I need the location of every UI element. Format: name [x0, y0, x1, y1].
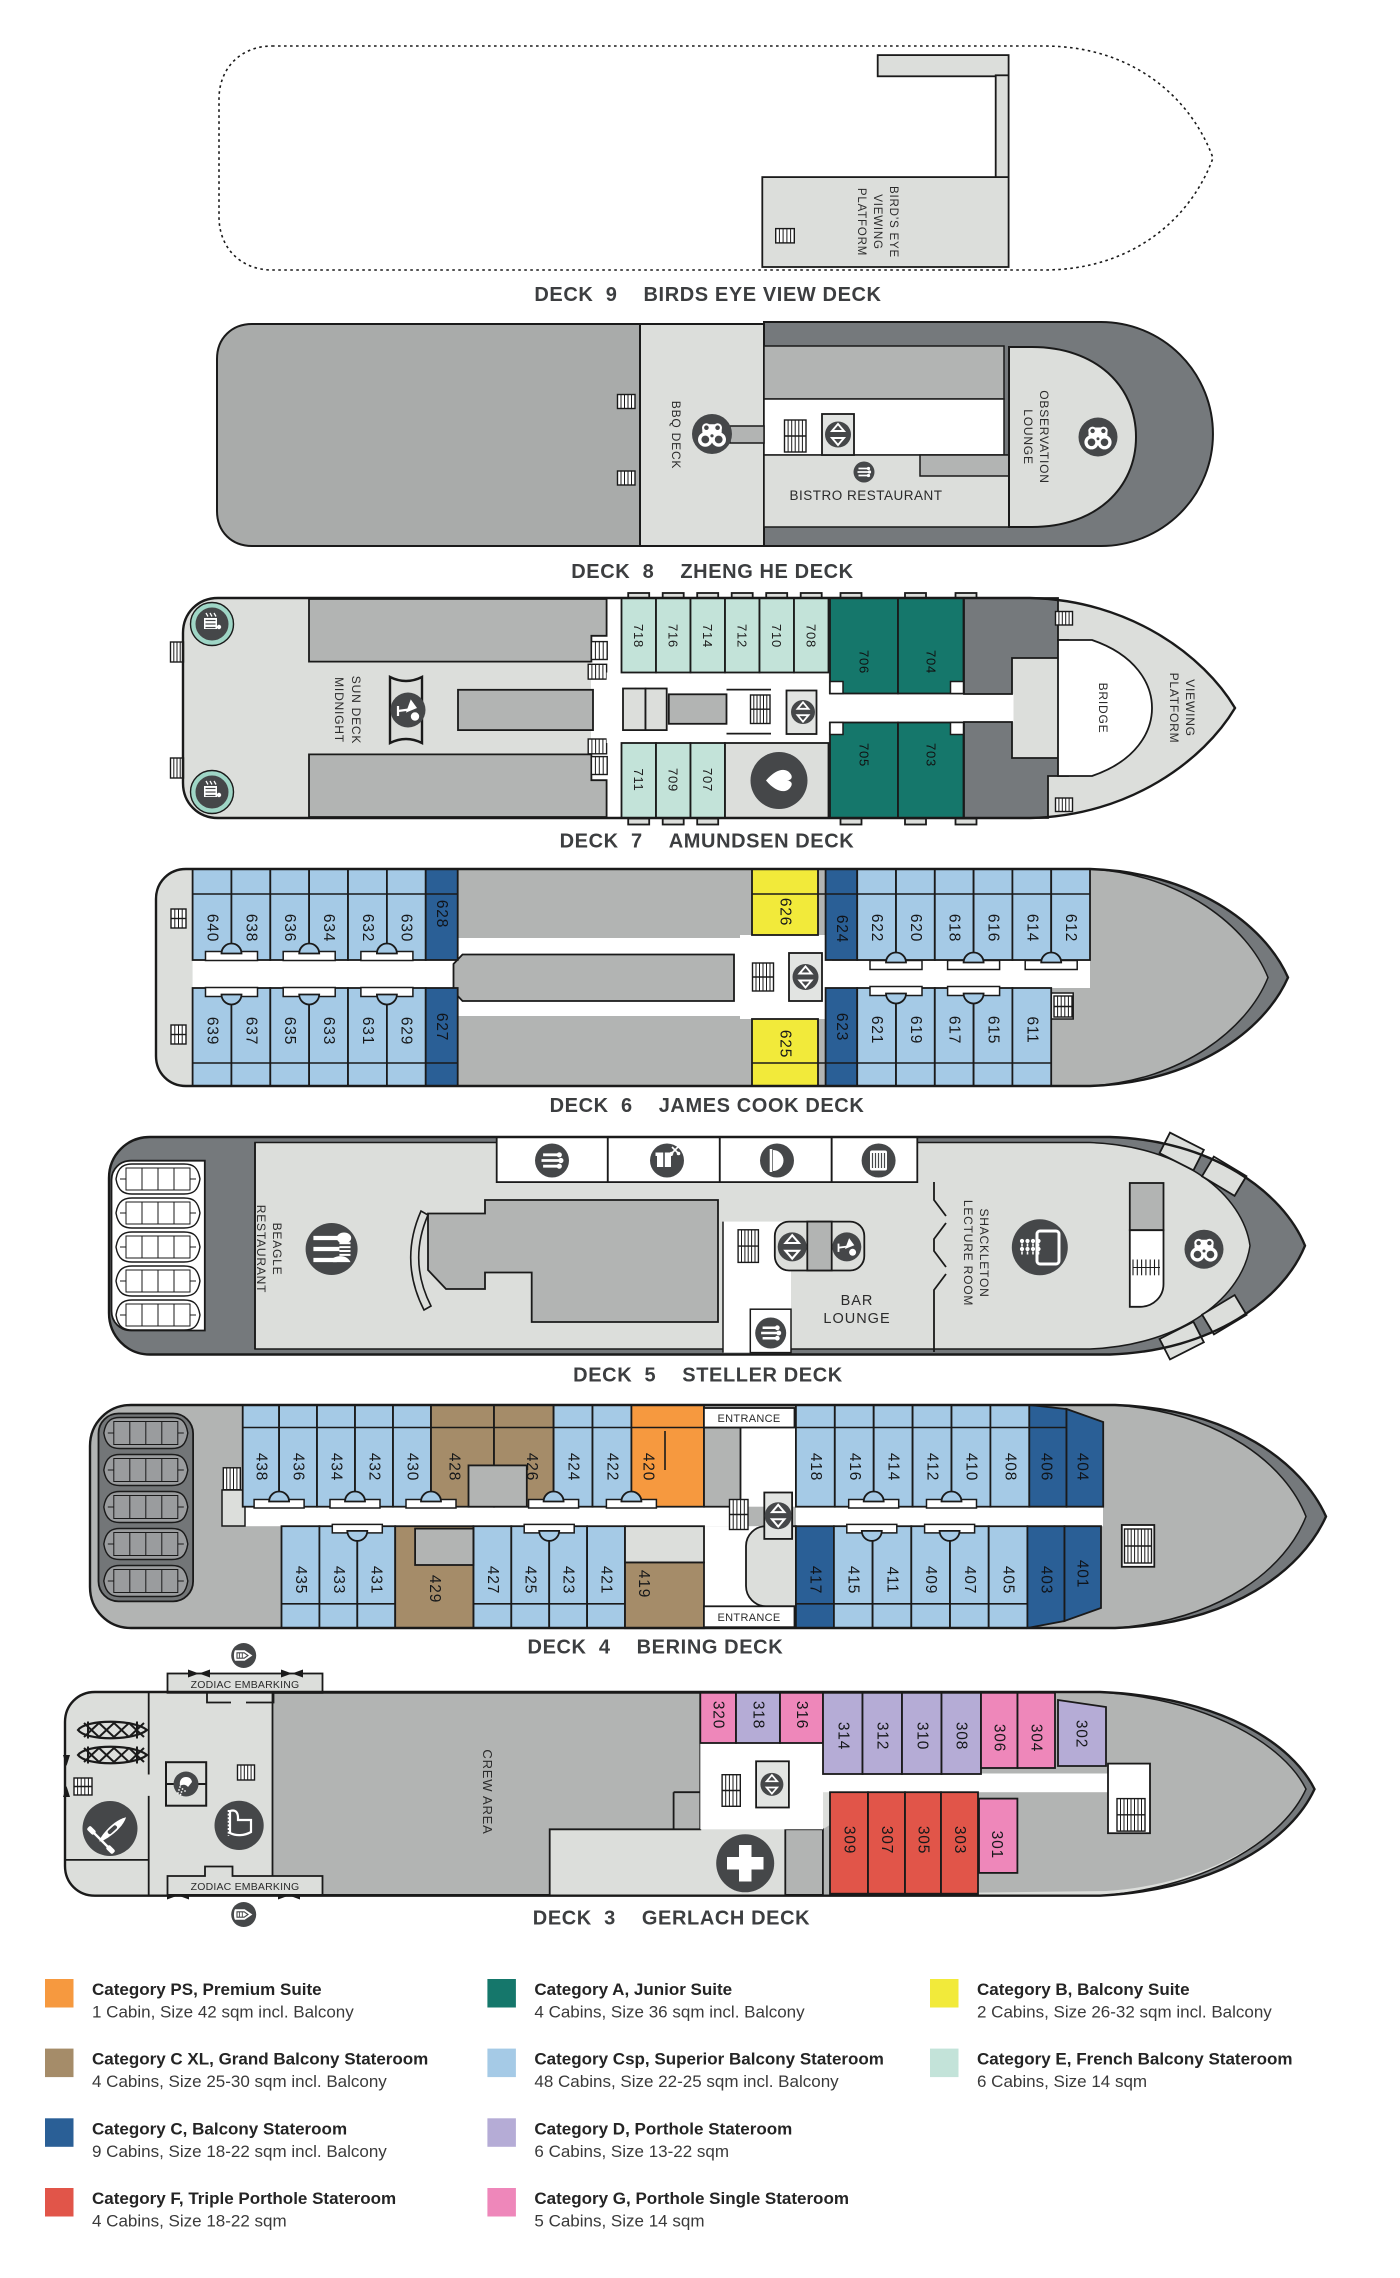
- svg-text:628: 628: [433, 900, 450, 928]
- svg-text:416: 416: [846, 1453, 863, 1481]
- svg-text:2 Cabins, Size 26-32 sqm incl.: 2 Cabins, Size 26-32 sqm incl. Balcony: [977, 2003, 1272, 2022]
- svg-text:630: 630: [398, 914, 415, 942]
- svg-text:615: 615: [985, 1016, 1002, 1044]
- svg-text:616: 616: [985, 914, 1002, 942]
- svg-text:429: 429: [426, 1575, 443, 1603]
- svg-text:309: 309: [841, 1826, 858, 1854]
- svg-text:414: 414: [885, 1453, 902, 1481]
- svg-text:710: 710: [769, 624, 784, 648]
- svg-text:422: 422: [604, 1453, 621, 1481]
- svg-text:Category C, Balcony Stateroom: Category C, Balcony Stateroom: [92, 2119, 347, 2138]
- svg-text:5 Cabins, Size 14 sqm: 5 Cabins, Size 14 sqm: [534, 2212, 704, 2231]
- svg-text:DECK 9BIRDS EYE VIEW DECK: DECK 9BIRDS EYE VIEW DECK: [534, 284, 881, 306]
- svg-text:BIRD’S EYE: BIRD’S EYE: [887, 186, 899, 258]
- svg-text:401: 401: [1074, 1560, 1091, 1588]
- svg-text:LECTURE ROOM: LECTURE ROOM: [961, 1200, 975, 1306]
- svg-text:PLATFORM: PLATFORM: [855, 188, 867, 256]
- svg-text:705: 705: [857, 743, 872, 767]
- svg-text:4 Cabins, Size 25-30 sqm incl.: 4 Cabins, Size 25-30 sqm incl. Balcony: [92, 2072, 387, 2091]
- svg-text:425: 425: [522, 1566, 539, 1594]
- svg-text:625: 625: [777, 1030, 794, 1058]
- svg-text:DECK 8ZHENG HE DECK: DECK 8ZHENG HE DECK: [571, 561, 853, 583]
- svg-text:410: 410: [963, 1453, 980, 1481]
- svg-text:BISTRO RESTAURANT: BISTRO RESTAURANT: [789, 488, 942, 503]
- svg-text:712: 712: [735, 624, 750, 648]
- svg-text:VIEWING: VIEWING: [1183, 679, 1197, 737]
- svg-text:Category A, Junior Suite: Category A, Junior Suite: [534, 1980, 732, 1999]
- svg-text:635: 635: [281, 1017, 298, 1045]
- svg-text:Category B, Balcony Suite: Category B, Balcony Suite: [977, 1980, 1190, 1999]
- svg-text:Category PS, Premium Suite: Category PS, Premium Suite: [92, 1980, 322, 1999]
- svg-text:DECK 5STELLER DECK: DECK 5STELLER DECK: [573, 1365, 843, 1387]
- svg-text:433: 433: [330, 1566, 347, 1594]
- svg-text:409: 409: [922, 1566, 939, 1594]
- svg-text:428: 428: [446, 1453, 463, 1481]
- svg-text:PLATFORM: PLATFORM: [1167, 673, 1181, 744]
- svg-text:626: 626: [777, 898, 794, 926]
- svg-text:310: 310: [913, 1722, 930, 1750]
- svg-text:634: 634: [320, 914, 337, 942]
- svg-text:424: 424: [565, 1453, 582, 1481]
- svg-text:617: 617: [946, 1016, 963, 1044]
- svg-text:SUN DECK: SUN DECK: [349, 676, 363, 744]
- svg-text:BAR: BAR: [841, 1293, 874, 1309]
- svg-text:RESTAURANT: RESTAURANT: [254, 1205, 268, 1293]
- svg-text:407: 407: [961, 1566, 978, 1594]
- svg-text:403: 403: [1038, 1566, 1055, 1594]
- svg-text:Category E, French Balcony Sta: Category E, French Balcony Stateroom: [977, 2050, 1293, 2069]
- svg-text:303: 303: [951, 1826, 968, 1854]
- svg-text:704: 704: [924, 650, 939, 674]
- svg-text:307: 307: [878, 1826, 895, 1854]
- svg-text:612: 612: [1062, 914, 1079, 942]
- svg-text:6 Cabins, Size 13-22 sqm: 6 Cabins, Size 13-22 sqm: [534, 2142, 729, 2161]
- svg-text:711: 711: [631, 768, 646, 791]
- svg-text:MIDNIGHT: MIDNIGHT: [332, 677, 346, 743]
- svg-text:405: 405: [1000, 1566, 1017, 1594]
- svg-text:9 Cabins, Size 18-22 sqm incl.: 9 Cabins, Size 18-22 sqm incl. Balcony: [92, 2142, 387, 2161]
- svg-text:305: 305: [915, 1826, 932, 1854]
- svg-text:718: 718: [631, 624, 646, 648]
- svg-text:301: 301: [988, 1831, 1005, 1859]
- svg-text:629: 629: [398, 1017, 415, 1045]
- svg-text:706: 706: [857, 650, 872, 674]
- svg-text:320: 320: [710, 1701, 727, 1729]
- svg-text:LOUNGE: LOUNGE: [823, 1311, 890, 1327]
- svg-text:BBQ DECK: BBQ DECK: [669, 401, 683, 469]
- svg-text:708: 708: [804, 624, 819, 648]
- svg-text:431: 431: [368, 1566, 385, 1594]
- svg-text:408: 408: [1001, 1453, 1018, 1481]
- svg-text:DECK 7AMUNDSEN DECK: DECK 7AMUNDSEN DECK: [560, 831, 855, 853]
- svg-text:6 Cabins, Size 14 sqm: 6 Cabins, Size 14 sqm: [977, 2072, 1147, 2091]
- svg-text:436: 436: [290, 1453, 307, 1481]
- svg-text:618: 618: [946, 914, 963, 942]
- svg-text:418: 418: [807, 1453, 824, 1481]
- svg-text:637: 637: [242, 1017, 259, 1045]
- svg-text:427: 427: [484, 1566, 501, 1594]
- svg-text:636: 636: [281, 914, 298, 942]
- svg-text:4 Cabins, Size 36 sqm incl. Ba: 4 Cabins, Size 36 sqm incl. Balcony: [534, 2003, 805, 2022]
- svg-text:631: 631: [359, 1017, 376, 1045]
- svg-text:1 Cabin, Size 42 sqm incl. Bal: 1 Cabin, Size 42 sqm incl. Balcony: [92, 2003, 354, 2022]
- svg-text:633: 633: [320, 1017, 337, 1045]
- svg-text:640: 640: [204, 914, 221, 942]
- svg-text:304: 304: [1028, 1724, 1045, 1752]
- svg-text:Category G, Porthole Single St: Category G, Porthole Single Stateroom: [534, 2189, 849, 2208]
- svg-text:CREW AREA: CREW AREA: [480, 1749, 495, 1834]
- svg-text:Category D, Porthole Stateroom: Category D, Porthole Stateroom: [534, 2119, 792, 2138]
- svg-text:438: 438: [252, 1453, 269, 1481]
- svg-text:430: 430: [404, 1453, 421, 1481]
- svg-text:48 Cabins, Size 22-25 sqm incl: 48 Cabins, Size 22-25 sqm incl. Balcony: [534, 2072, 839, 2091]
- svg-text:ENTRANCE: ENTRANCE: [718, 1413, 781, 1425]
- svg-text:611: 611: [1023, 1016, 1040, 1043]
- svg-text:316: 316: [793, 1701, 810, 1729]
- svg-text:DECK 3GERLACH DECK: DECK 3GERLACH DECK: [533, 1907, 810, 1929]
- svg-text:707: 707: [700, 768, 715, 792]
- svg-text:411: 411: [883, 1566, 900, 1593]
- svg-text:314: 314: [834, 1722, 851, 1750]
- svg-text:306: 306: [991, 1724, 1008, 1752]
- svg-text:VIEWING: VIEWING: [871, 194, 883, 249]
- svg-text:622: 622: [868, 914, 885, 942]
- svg-text:DECK 6JAMES COOK DECK: DECK 6JAMES COOK DECK: [550, 1095, 865, 1117]
- svg-text:Category Csp, Superior Balcony: Category Csp, Superior Balcony Stateroom: [534, 2050, 884, 2069]
- svg-text:406: 406: [1038, 1453, 1055, 1481]
- svg-text:Category F, Triple Porthole St: Category F, Triple Porthole Stateroom: [92, 2189, 396, 2208]
- svg-text:623: 623: [833, 1013, 850, 1041]
- svg-text:627: 627: [433, 1013, 450, 1041]
- svg-text:709: 709: [666, 768, 681, 792]
- svg-text:318: 318: [750, 1701, 767, 1729]
- svg-text:638: 638: [242, 914, 259, 942]
- svg-text:SHACKLETON: SHACKLETON: [977, 1208, 991, 1297]
- svg-text:ZODIAC EMBARKING: ZODIAC EMBARKING: [191, 1881, 300, 1893]
- svg-text:421: 421: [598, 1566, 615, 1594]
- svg-text:432: 432: [366, 1453, 383, 1481]
- svg-text:620: 620: [907, 914, 924, 942]
- svg-text:DECK 4BERING DECK: DECK 4BERING DECK: [528, 1637, 784, 1659]
- svg-text:621: 621: [868, 1016, 885, 1044]
- svg-text:308: 308: [953, 1722, 970, 1750]
- svg-text:302: 302: [1073, 1720, 1090, 1748]
- svg-text:420: 420: [640, 1453, 657, 1481]
- svg-text:4 Cabins, Size 18-22 sqm: 4 Cabins, Size 18-22 sqm: [92, 2212, 287, 2231]
- svg-text:412: 412: [924, 1453, 941, 1481]
- svg-text:714: 714: [700, 624, 715, 648]
- svg-text:423: 423: [560, 1566, 577, 1594]
- svg-text:OBSERVATION: OBSERVATION: [1037, 390, 1051, 484]
- svg-text:404: 404: [1074, 1453, 1091, 1481]
- svg-text:716: 716: [666, 624, 681, 648]
- svg-text:703: 703: [924, 743, 939, 767]
- svg-text:312: 312: [874, 1722, 891, 1750]
- svg-text:614: 614: [1023, 914, 1040, 942]
- svg-text:639: 639: [204, 1017, 221, 1045]
- svg-text:ENTRANCE: ENTRANCE: [718, 1612, 781, 1624]
- svg-text:LOUNGE: LOUNGE: [1021, 409, 1035, 464]
- svg-text:434: 434: [328, 1453, 345, 1481]
- svg-text:ZODIAC EMBARKING: ZODIAC EMBARKING: [191, 1679, 300, 1691]
- svg-text:632: 632: [359, 914, 376, 942]
- svg-text:435: 435: [292, 1566, 309, 1594]
- svg-text:BRIDGE: BRIDGE: [1096, 683, 1110, 734]
- svg-text:Category C XL, Grand Balcony S: Category C XL, Grand Balcony Stateroom: [92, 2050, 428, 2069]
- svg-text:619: 619: [907, 1016, 924, 1044]
- svg-text:417: 417: [806, 1566, 823, 1594]
- svg-text:419: 419: [635, 1570, 652, 1598]
- svg-text:BEAGLE: BEAGLE: [270, 1223, 284, 1276]
- svg-text:624: 624: [833, 915, 850, 943]
- svg-text:415: 415: [845, 1566, 862, 1594]
